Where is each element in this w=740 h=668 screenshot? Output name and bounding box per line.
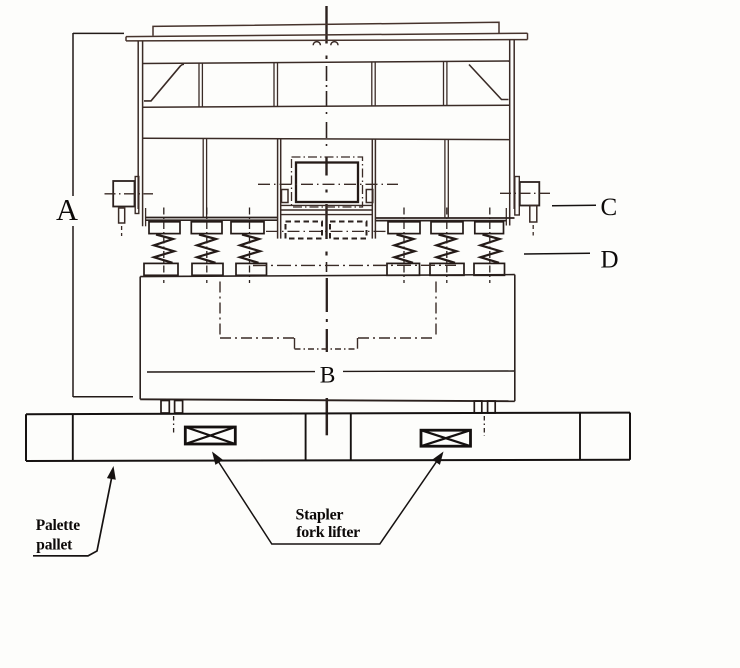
svg-text:B: B (320, 363, 336, 389)
svg-text:A: A (56, 193, 78, 227)
svg-text:Palette: Palette (36, 517, 81, 534)
svg-text:C: C (601, 194, 618, 221)
svg-text:fork lifter: fork lifter (296, 524, 360, 541)
svg-text:Stapler: Stapler (296, 507, 344, 524)
svg-text:pallet: pallet (36, 536, 73, 553)
svg-text:D: D (601, 247, 619, 274)
